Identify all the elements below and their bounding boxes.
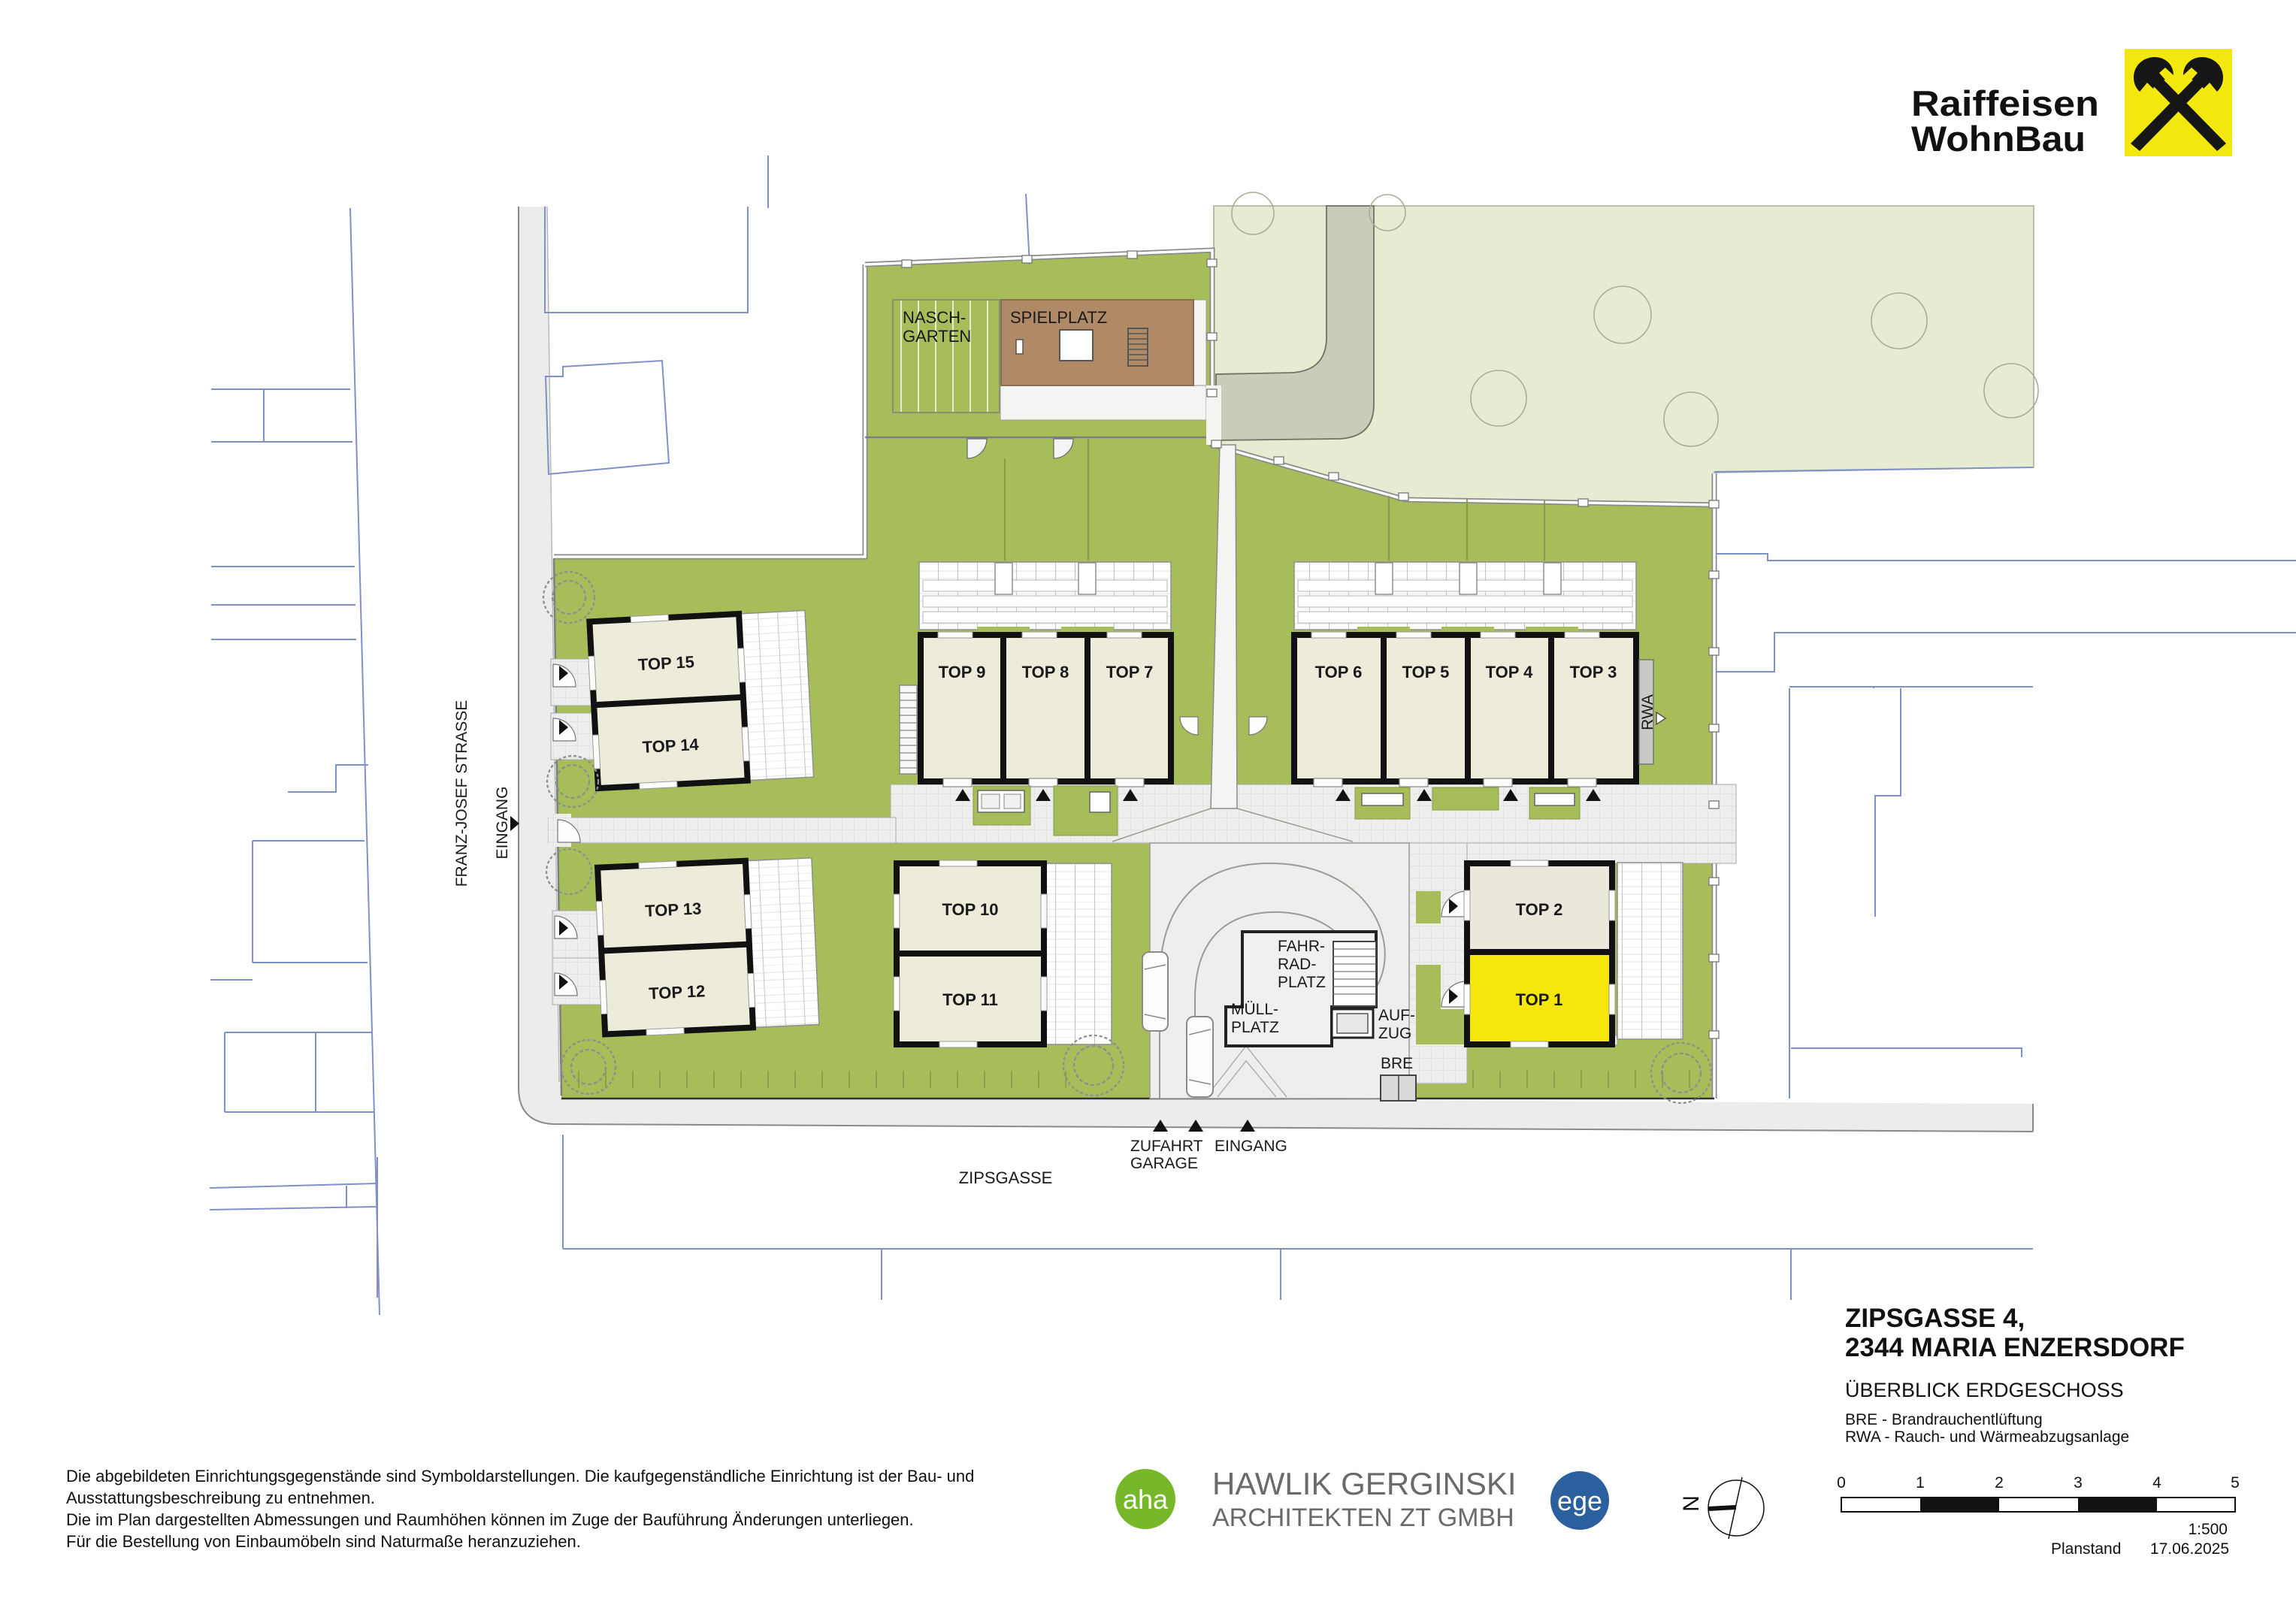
svg-text:RWA - Rauch- und Wärmeabzugsan: RWA - Rauch- und Wärmeabzugsanlage (1845, 1428, 2129, 1446)
svg-text:TOP 4: TOP 4 (1486, 663, 1534, 682)
svg-text:BRE - Brandrauchentlüftung: BRE - Brandrauchentlüftung (1845, 1411, 2043, 1428)
svg-text:5: 5 (2231, 1474, 2240, 1492)
svg-text:NASCH-: NASCH- (903, 308, 966, 327)
svg-text:4: 4 (2152, 1474, 2161, 1492)
svg-text:ARCHITEKTEN ZT GMBH: ARCHITEKTEN ZT GMBH (1212, 1504, 1514, 1532)
svg-text:Die im Plan dargestellten Abme: Die im Plan dargestellten Abmessungen un… (66, 1510, 914, 1529)
svg-text:EINGANG: EINGANG (494, 787, 511, 860)
svg-text:TOP 8: TOP 8 (1022, 663, 1069, 682)
svg-text:ege: ege (1557, 1485, 1602, 1516)
svg-text:Ausstattungsbeschreibung zu en: Ausstattungsbeschreibung zu entnehmen. (66, 1489, 375, 1507)
svg-text:ZIPSGASSE 4,: ZIPSGASSE 4, (1845, 1304, 2025, 1333)
svg-text:RWA: RWA (1639, 694, 1656, 730)
svg-text:TOP 6: TOP 6 (1315, 663, 1363, 682)
svg-text:1: 1 (1916, 1474, 1925, 1492)
svg-text:TOP 10: TOP 10 (942, 900, 998, 919)
svg-text:BRE: BRE (1381, 1055, 1413, 1072)
svg-text:TOP 5: TOP 5 (1402, 663, 1450, 682)
svg-text:TOP 13: TOP 13 (645, 899, 702, 920)
svg-text:TOP 11: TOP 11 (942, 990, 998, 1009)
svg-text:SPIELPLATZ: SPIELPLATZ (1010, 308, 1107, 327)
svg-text:AUF-: AUF- (1378, 1007, 1415, 1024)
svg-text:MÜLL-: MÜLL- (1231, 1001, 1278, 1018)
svg-text:0: 0 (1837, 1474, 1846, 1492)
svg-text:FRANZ-JOSEF STRASSE: FRANZ-JOSEF STRASSE (453, 700, 470, 887)
svg-text:ZIPSGASSE: ZIPSGASSE (959, 1168, 1053, 1187)
svg-text:aha: aha (1123, 1484, 1169, 1515)
svg-text:RAD-: RAD- (1278, 956, 1316, 973)
svg-text:ZUFAHRT: ZUFAHRT (1130, 1138, 1203, 1155)
svg-text:FAHR-: FAHR- (1278, 938, 1325, 955)
svg-text:2344 MARIA ENZERSDORF: 2344 MARIA ENZERSDORF (1845, 1333, 2185, 1362)
svg-text:GARAGE: GARAGE (1130, 1155, 1198, 1172)
svg-text:TOP 14: TOP 14 (642, 735, 700, 757)
svg-text:17.06.2025: 17.06.2025 (2150, 1540, 2229, 1558)
svg-text:Planstand: Planstand (2051, 1540, 2121, 1558)
svg-text:TOP 1: TOP 1 (1516, 990, 1563, 1009)
svg-text:TOP 9: TOP 9 (939, 663, 986, 682)
svg-text:N: N (1679, 1495, 1704, 1512)
svg-text:Die abgebildeten Einrichtungsg: Die abgebildeten Einrichtungsgegenstände… (66, 1467, 974, 1485)
svg-text:2: 2 (1995, 1474, 2004, 1492)
svg-text:EINGANG: EINGANG (1215, 1138, 1287, 1155)
svg-text:Für die Bestellung von Einbaum: Für die Bestellung von Einbaumöbeln sind… (66, 1532, 581, 1551)
svg-text:TOP 15: TOP 15 (637, 652, 694, 674)
svg-text:1:500: 1:500 (2188, 1521, 2228, 1538)
svg-text:GARTEN: GARTEN (903, 327, 971, 346)
svg-text:PLATZ: PLATZ (1231, 1019, 1279, 1036)
svg-text:ZUG: ZUG (1378, 1025, 1411, 1042)
svg-text:TOP 7: TOP 7 (1106, 663, 1154, 682)
svg-text:3: 3 (2074, 1474, 2083, 1492)
svg-text:HAWLIK GERGINSKI: HAWLIK GERGINSKI (1212, 1466, 1517, 1501)
svg-text:PLATZ: PLATZ (1278, 974, 1326, 991)
svg-text:TOP 3: TOP 3 (1570, 663, 1617, 682)
svg-text:Raiffeisen: Raiffeisen (1911, 83, 2099, 123)
svg-text:ÜBERBLICK ERDGESCHOSS: ÜBERBLICK ERDGESCHOSS (1845, 1379, 2124, 1401)
svg-text:TOP 12: TOP 12 (649, 981, 706, 1002)
svg-text:WohnBau: WohnBau (1911, 119, 2086, 159)
svg-text:TOP 2: TOP 2 (1516, 900, 1563, 919)
